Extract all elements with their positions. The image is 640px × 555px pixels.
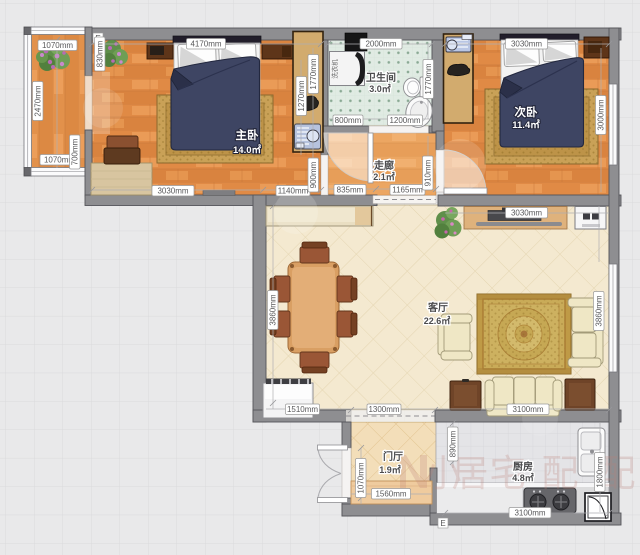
svg-text:1300mm: 1300mm bbox=[368, 405, 399, 414]
svg-text:3000mm: 3000mm bbox=[597, 99, 606, 130]
svg-text:3.0㎡: 3.0㎡ bbox=[369, 83, 391, 94]
svg-text:1070mm: 1070mm bbox=[42, 41, 73, 50]
svg-text:830mm: 830mm bbox=[96, 40, 105, 67]
svg-text:E: E bbox=[440, 519, 445, 528]
svg-text:3860mm: 3860mm bbox=[595, 295, 604, 326]
svg-text:3100mm: 3100mm bbox=[514, 509, 545, 518]
svg-text:2000mm: 2000mm bbox=[365, 40, 396, 49]
svg-text:客厅: 客厅 bbox=[427, 301, 448, 314]
svg-text:1560mm: 1560mm bbox=[375, 490, 406, 499]
svg-text:卫生间: 卫生间 bbox=[366, 71, 396, 84]
svg-text:1140mm: 1140mm bbox=[278, 187, 309, 196]
svg-text:14.0㎡: 14.0㎡ bbox=[233, 144, 261, 156]
svg-text:4.8㎡: 4.8㎡ bbox=[512, 472, 534, 483]
svg-text:910mm: 910mm bbox=[424, 159, 433, 186]
svg-text:1770mm: 1770mm bbox=[309, 58, 318, 89]
svg-text:门厅: 门厅 bbox=[383, 450, 403, 463]
svg-text:1270mm: 1270mm bbox=[297, 80, 306, 111]
svg-text:2470mm: 2470mm bbox=[34, 85, 43, 116]
svg-text:700mm: 700mm bbox=[71, 138, 80, 165]
svg-text:1200mm: 1200mm bbox=[389, 116, 420, 125]
svg-text:1.9㎡: 1.9㎡ bbox=[379, 464, 401, 475]
svg-text:890mm: 890mm bbox=[449, 430, 458, 457]
svg-text:3030mm: 3030mm bbox=[157, 187, 188, 196]
svg-text:洗衣机: 洗衣机 bbox=[330, 59, 339, 79]
svg-text:4170mm: 4170mm bbox=[190, 40, 221, 49]
svg-text:900mm: 900mm bbox=[309, 161, 318, 188]
svg-text:配: 配 bbox=[542, 453, 579, 494]
svg-text:3030mm: 3030mm bbox=[511, 40, 542, 49]
svg-text:1165mm: 1165mm bbox=[392, 186, 423, 195]
svg-text:800mm: 800mm bbox=[335, 116, 362, 125]
svg-text:22.6㎡: 22.6㎡ bbox=[424, 315, 451, 326]
svg-text:走廊: 走廊 bbox=[373, 159, 394, 172]
svg-text:1070mm: 1070mm bbox=[357, 462, 366, 493]
svg-text:2.1㎡: 2.1㎡ bbox=[373, 171, 395, 182]
svg-text:3860mm: 3860mm bbox=[269, 294, 278, 325]
svg-text:11.4㎡: 11.4㎡ bbox=[512, 119, 540, 131]
svg-text:835mm: 835mm bbox=[337, 186, 364, 195]
svg-text:1800mm: 1800mm bbox=[596, 456, 605, 487]
svg-text:3030mm: 3030mm bbox=[511, 209, 542, 218]
svg-text:1510mm: 1510mm bbox=[287, 405, 318, 414]
svg-text:主卧: 主卧 bbox=[236, 128, 259, 142]
svg-text:3100mm: 3100mm bbox=[512, 405, 543, 414]
svg-text:1770mm: 1770mm bbox=[424, 63, 433, 94]
svg-text:次卧: 次卧 bbox=[515, 105, 538, 119]
svg-text:厨房: 厨房 bbox=[513, 460, 533, 473]
